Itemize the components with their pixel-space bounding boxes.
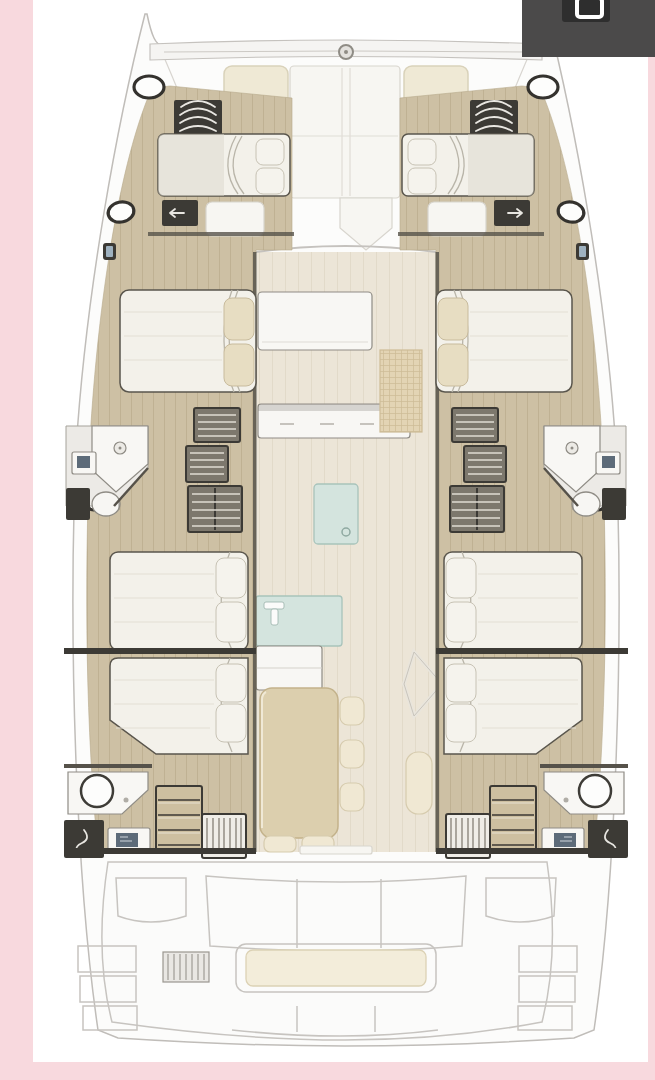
faucet-icon [264, 602, 284, 609]
foredeck-panel [290, 66, 400, 198]
salon [256, 246, 442, 854]
floor-plan-svg [0, 0, 655, 1080]
salon-door [300, 846, 372, 854]
stool [340, 697, 364, 725]
page-margin-left [0, 0, 33, 1080]
galley-island [258, 292, 372, 350]
grill [163, 952, 209, 982]
stool [264, 836, 296, 852]
image-tool-button[interactable] [562, 0, 610, 22]
galley-mat [380, 350, 422, 432]
cockpit-bench [206, 876, 466, 951]
image-tool-overlay [522, 0, 655, 57]
bench-cushion [246, 950, 426, 986]
lounge-cushion [406, 752, 432, 814]
floor-hatch [314, 484, 358, 544]
sink-unit [256, 596, 342, 646]
rounded-square-icon [575, 0, 604, 19]
stool [340, 783, 364, 811]
forward-crossbeam [150, 40, 542, 60]
stool [340, 740, 364, 768]
aft-cockpit [78, 862, 577, 1040]
page-margin-bottom [0, 1062, 655, 1080]
page-margin-right [648, 0, 655, 1080]
screenshot-root [0, 0, 655, 1080]
dining-table [260, 688, 338, 838]
catamaran [64, 14, 628, 1046]
